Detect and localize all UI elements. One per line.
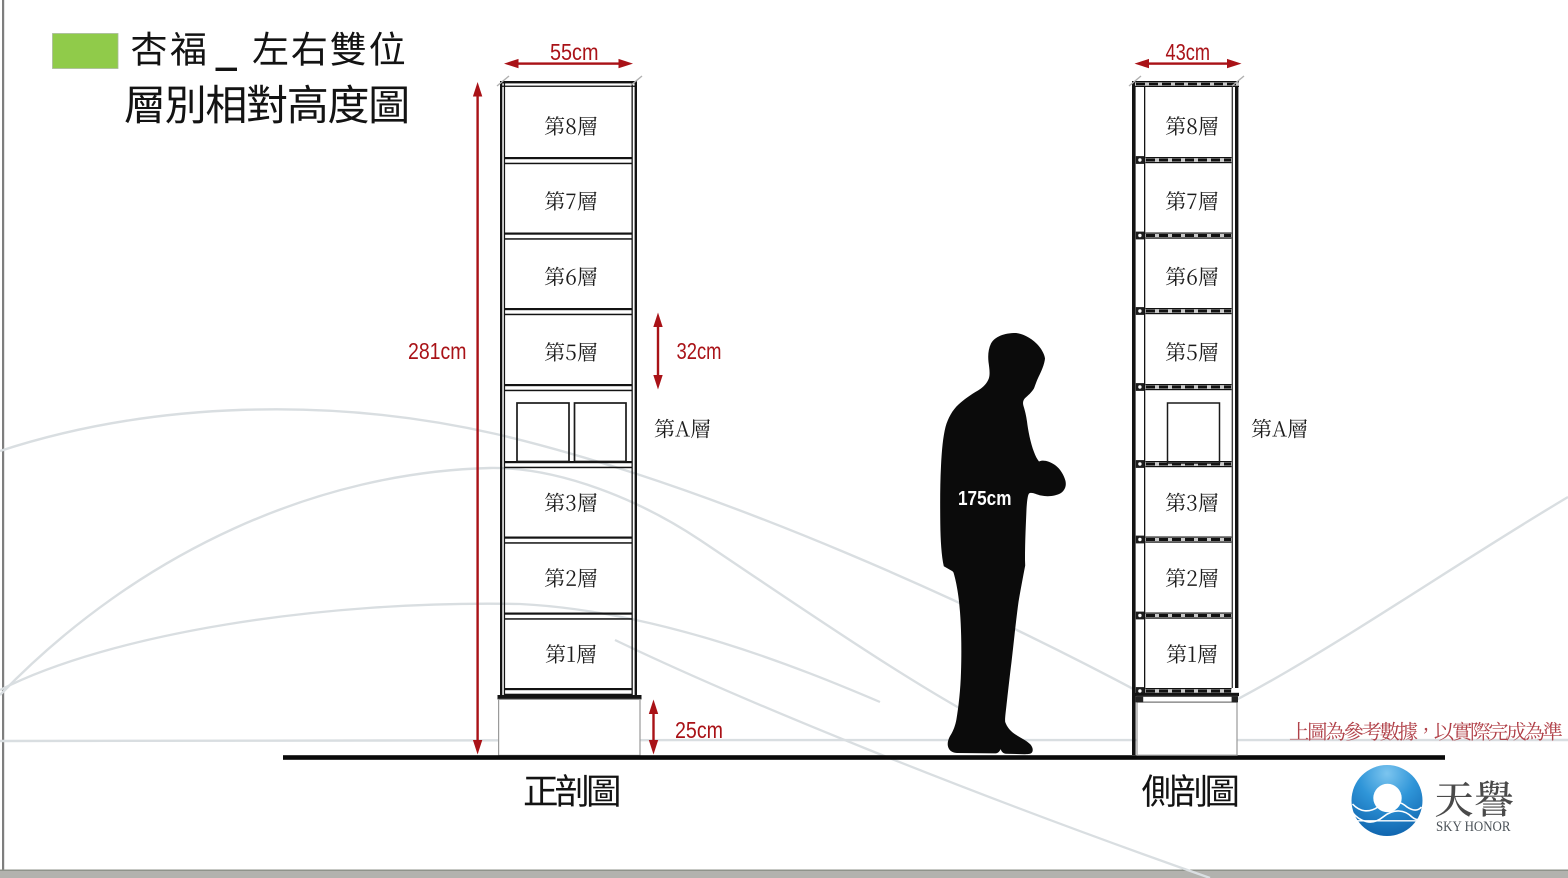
svg-text:32cm: 32cm: [677, 338, 722, 364]
svg-text:55cm: 55cm: [550, 39, 599, 65]
svg-text:175cm: 175cm: [958, 487, 1012, 510]
svg-text:281cm: 281cm: [408, 338, 467, 364]
svg-text:43cm: 43cm: [1166, 39, 1211, 65]
svg-text:SKY HONOR: SKY HONOR: [1436, 819, 1511, 835]
svg-text:25cm: 25cm: [675, 717, 723, 743]
